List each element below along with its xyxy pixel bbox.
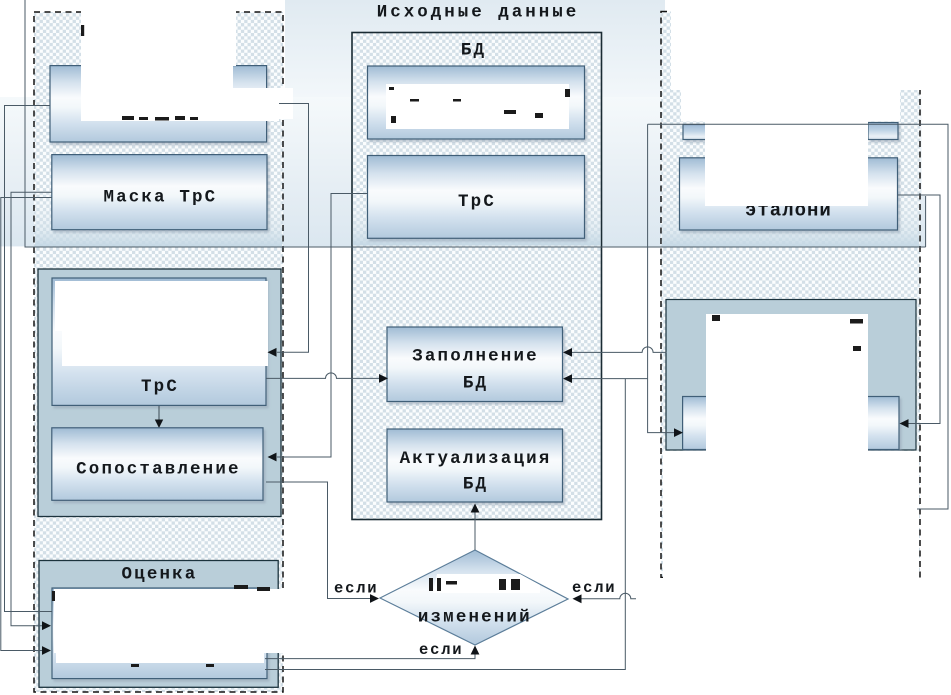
svg-text:БД: БД [463, 474, 488, 494]
svg-text:Сопоставление: Сопоставление [76, 460, 240, 480]
svg-text:если: если [572, 579, 616, 597]
svg-text:Оценка: Оценка [122, 565, 198, 585]
svg-text:ТрС: ТрС [458, 192, 496, 212]
svg-text:ТрС: ТрС [141, 377, 179, 397]
svg-text:Заполнение: Заполнение [412, 347, 539, 367]
svg-text:Маска ТрС: Маска ТрС [103, 188, 217, 208]
svg-text:изменений: изменений [418, 608, 532, 628]
svg-text:БД: БД [461, 41, 486, 61]
svg-text:БД: БД [463, 374, 488, 394]
svg-text:Исходные данные: Исходные данные [377, 3, 580, 23]
svg-text:если: если [334, 580, 378, 598]
svg-text:если: если [419, 641, 463, 659]
svg-text:Актуализация: Актуализация [400, 449, 552, 469]
